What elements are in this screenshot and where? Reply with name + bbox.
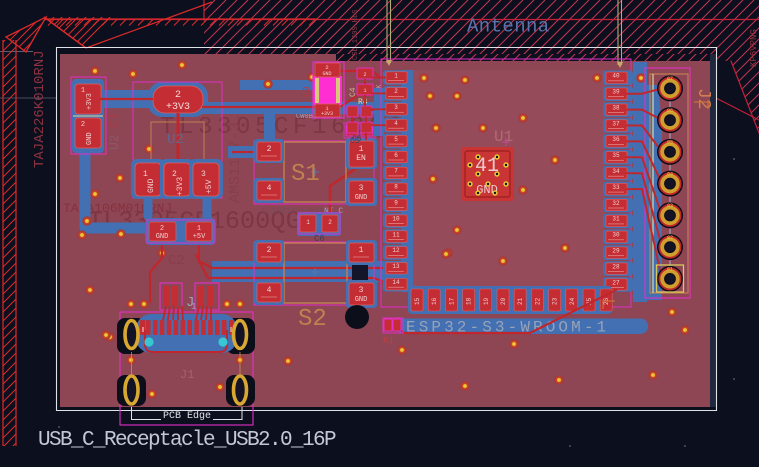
svg-text:36: 36 <box>612 136 620 143</box>
svg-text:S1: S1 <box>291 161 320 188</box>
svg-text:GND: GND <box>355 296 368 304</box>
svg-text:34: 34 <box>612 168 620 175</box>
svg-text:6: 6 <box>394 152 398 159</box>
svg-text:1: 1 <box>363 88 366 94</box>
svg-text:07: 07 <box>667 76 673 82</box>
svg-text:GND: GND <box>86 132 94 145</box>
svg-text:2: 2 <box>175 90 181 101</box>
svg-text:+3V3: +3V3 <box>321 111 333 117</box>
svg-text:C5: C5 <box>352 135 362 144</box>
svg-text:15: 15 <box>414 297 421 305</box>
svg-text:14: 14 <box>392 279 400 286</box>
svg-text:19: 19 <box>483 297 490 305</box>
svg-text:03: 03 <box>667 203 673 209</box>
svg-text:Antenna: Antenna <box>467 16 550 38</box>
svg-text:30: 30 <box>612 232 620 239</box>
svg-text:1: 1 <box>359 145 364 154</box>
svg-text:U1: U1 <box>494 128 513 146</box>
svg-text:R1: R1 <box>383 336 394 346</box>
svg-text:06: 06 <box>667 108 673 114</box>
svg-text:18: 18 <box>466 297 473 305</box>
svg-text:13: 13 <box>392 263 400 270</box>
svg-text:2: 2 <box>81 121 85 129</box>
svg-text:27: 27 <box>612 279 620 286</box>
svg-text:+3V3: +3V3 <box>176 177 185 196</box>
svg-text:1: 1 <box>394 72 398 79</box>
svg-text:2: 2 <box>267 246 272 255</box>
svg-text:KP6VPNG: KP6VPNG <box>749 29 759 67</box>
svg-text:PCB Edge: PCB Edge <box>163 410 211 422</box>
svg-text:1: 1 <box>197 225 201 233</box>
svg-text:2: 2 <box>160 225 164 233</box>
svg-text:S2: S2 <box>298 306 327 333</box>
svg-text:17: 17 <box>448 297 455 305</box>
svg-text:+5V: +5V <box>193 233 206 241</box>
svg-text:C1: C1 <box>107 112 122 128</box>
svg-text:5: 5 <box>394 136 398 143</box>
svg-text:USB_C_Receptacle_USB2.0_16P: USB_C_Receptacle_USB2.0_16P <box>38 429 336 452</box>
svg-text:4: 4 <box>394 120 398 127</box>
svg-text:21: 21 <box>517 297 524 305</box>
svg-text:3: 3 <box>359 286 364 295</box>
svg-text:1: 1 <box>143 170 148 179</box>
svg-text:GND: GND <box>156 233 169 241</box>
svg-text:10: 10 <box>392 215 400 222</box>
svg-text:TAJA106M010RNJ: TAJA106M010RNJ <box>63 201 172 216</box>
svg-text:+5V: +5V <box>205 179 214 194</box>
svg-text:+3V3: +3V3 <box>86 93 94 110</box>
svg-text:3: 3 <box>201 170 206 179</box>
svg-text:3: 3 <box>394 104 398 111</box>
svg-text:12: 12 <box>392 247 400 254</box>
svg-text:32: 32 <box>612 200 620 207</box>
svg-text:16: 16 <box>431 297 438 305</box>
svg-text:04: 04 <box>667 171 673 177</box>
svg-text:GND: GND <box>147 178 156 193</box>
svg-text:4: 4 <box>267 184 272 193</box>
svg-text:TAJA226K010RNJ: TAJA226K010RNJ <box>32 50 48 168</box>
svg-text:3: 3 <box>359 184 364 193</box>
svg-text:9: 9 <box>394 200 398 207</box>
svg-text:33: 33 <box>612 184 620 191</box>
svg-text:EN: EN <box>356 154 366 163</box>
svg-text:1: 1 <box>191 302 196 312</box>
svg-text:2: 2 <box>394 88 398 95</box>
svg-text:11: 11 <box>392 231 400 238</box>
svg-text:GND: GND <box>355 194 368 202</box>
svg-text:C3: C3 <box>302 86 312 97</box>
svg-text:+3V3: +3V3 <box>166 102 190 113</box>
svg-text:01: 01 <box>667 267 673 273</box>
svg-text:2: 2 <box>325 64 328 71</box>
svg-text:24: 24 <box>569 297 576 305</box>
svg-text:U2: U2 <box>107 134 122 150</box>
svg-text:8: 8 <box>394 184 398 191</box>
svg-text:38: 38 <box>612 104 620 111</box>
svg-text:GND: GND <box>322 71 331 77</box>
svg-text:1: 1 <box>359 246 364 255</box>
svg-text:1: 1 <box>306 219 310 226</box>
svg-text:1: 1 <box>81 87 85 95</box>
svg-text:U2: U2 <box>167 132 184 148</box>
svg-text:C4: C4 <box>349 87 358 97</box>
svg-text:J2: J2 <box>693 88 713 110</box>
svg-text:22: 22 <box>534 297 541 305</box>
svg-text:31: 31 <box>612 216 620 223</box>
svg-text:35: 35 <box>612 152 620 159</box>
svg-text:4: 4 <box>267 286 272 295</box>
svg-text:40: 40 <box>612 73 620 80</box>
svg-text:39: 39 <box>612 89 620 96</box>
svg-text:CSL.1J0S.HLS: CSL.1J0S.HLS <box>352 10 360 60</box>
svg-text:20: 20 <box>500 297 507 305</box>
svg-text:J1: J1 <box>180 368 194 382</box>
svg-text:2: 2 <box>328 219 332 226</box>
svg-text:23: 23 <box>552 297 559 305</box>
svg-text:28: 28 <box>612 263 620 270</box>
svg-text:05: 05 <box>667 140 673 146</box>
svg-text:02: 02 <box>667 235 673 241</box>
svg-text:2: 2 <box>363 72 366 78</box>
svg-text:C2: C2 <box>168 253 185 269</box>
svg-text:37: 37 <box>612 120 620 127</box>
svg-text:29: 29 <box>612 248 620 255</box>
svg-text:2: 2 <box>267 145 272 154</box>
svg-text:7: 7 <box>394 168 398 175</box>
